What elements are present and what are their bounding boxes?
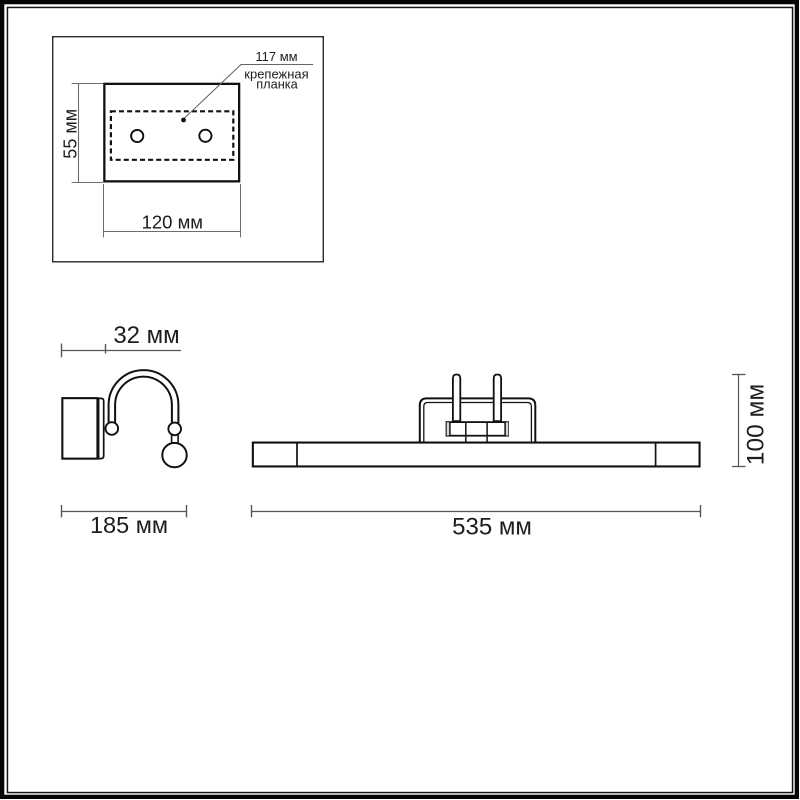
svg-text:120 мм: 120 мм [142, 212, 203, 233]
svg-text:185 мм: 185 мм [90, 512, 168, 538]
svg-text:55 мм: 55 мм [61, 109, 81, 159]
svg-text:планка: планка [256, 77, 298, 92]
svg-text:100 мм: 100 мм [743, 384, 770, 465]
svg-text:32 мм: 32 мм [113, 322, 179, 349]
svg-text:117 мм: 117 мм [255, 49, 297, 64]
svg-text:535 мм: 535 мм [452, 514, 532, 541]
